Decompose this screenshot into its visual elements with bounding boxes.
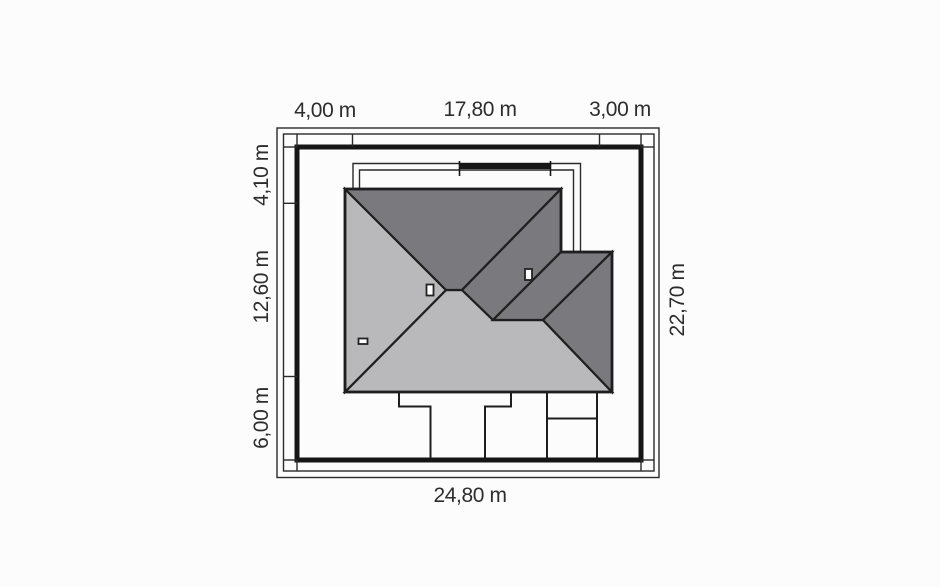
dim-label-left-top: 4,10 m xyxy=(251,115,273,235)
chimney-3 xyxy=(359,339,368,345)
dim-label-top-middle: 17,80 m xyxy=(420,99,540,121)
dim-label-bottom: 24,80 m xyxy=(410,485,530,507)
dim-label-left-middle: 12,60 m xyxy=(251,227,273,347)
chimney-1 xyxy=(427,285,434,296)
walkway-right-edge xyxy=(485,392,511,458)
dim-label-right: 22,70 m xyxy=(667,240,689,360)
site-plan: 4,00 m 17,80 m 3,00 m 4,10 m 12,60 m 6,0… xyxy=(0,0,940,587)
walkway-left-edge xyxy=(399,392,431,458)
chimney-2 xyxy=(525,269,532,280)
dim-label-left-bottom: 6,00 m xyxy=(251,358,273,478)
dim-label-top-left: 4,00 m xyxy=(265,100,385,122)
dim-label-top-right: 3,00 m xyxy=(560,99,680,121)
